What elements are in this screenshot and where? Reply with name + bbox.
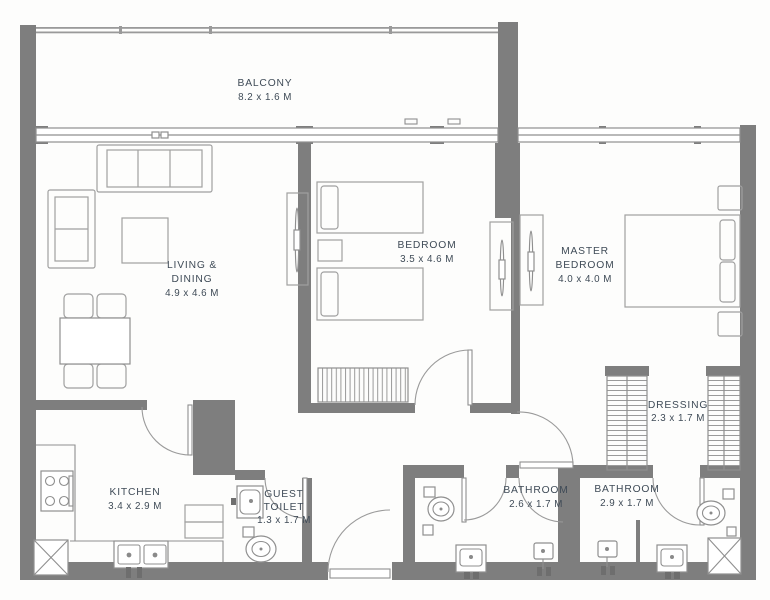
label-dims: 2.3 x 1.7 M [651,413,705,424]
fridge [185,505,223,538]
label-dims: 3.5 x 4.6 M [400,254,454,265]
toilet-guest [243,527,276,562]
label-line: KITCHEN [110,487,161,498]
service-shaft-kitchen [34,540,68,575]
toilet-bathroom-1 [423,487,454,535]
sofa-small [48,190,95,268]
label-dims: 8.2 x 1.6 M [238,92,292,103]
label-dims: 1.3 x 1.7 M [257,515,311,526]
bed-single-1 [317,182,423,233]
label-line: BEDROOM [398,240,457,251]
tv-unit-bedroom [490,222,513,310]
door-kitchen [142,405,192,455]
coffee-table [122,218,168,263]
label-dims: 3.4 x 2.9 M [108,501,162,512]
room-label-master-bedroom: MASTER BEDROOM 4.0 x 4.0 M [556,246,615,285]
label-line: DRESSING [648,400,708,411]
balcony-railing [36,26,498,34]
wardrobe-dressing-right [708,376,740,470]
dining-set [60,294,130,388]
nightstand-master-bottom [718,312,742,336]
room-label-living-dining: LIVING & DINING 4.9 x 4.6 M [165,260,219,299]
label-dims: 2.6 x 1.7 M [509,499,563,510]
door-bathroom-2 [653,478,704,525]
bed-master [625,215,740,307]
bed-single-2 [317,268,423,320]
room-label-bathroom-2: BATHROOM 2.9 x 1.7 M [594,484,659,509]
tv-unit-master [520,215,543,305]
service-shaft-bathroom-2 [708,538,741,574]
label-dims: 4.0 x 4.0 M [558,274,612,285]
label-line: MASTER [561,246,609,257]
label-dims: 4.9 x 4.6 M [165,288,219,299]
room-label-guest-toilet: GUEST TOILET 1.3 x 1.7 M [257,489,311,526]
label-line: BATHROOM [594,484,659,495]
stove [41,471,73,511]
label-line: BALCONY [238,78,293,89]
dining-chair [97,294,126,318]
label-line: LIVING & [167,260,217,271]
sofa-large [97,145,212,192]
label-line: BEDROOM [556,260,615,271]
wardrobe-dressing-left [607,376,647,470]
door-entry [328,510,390,578]
window-master [518,128,740,142]
room-label-balcony: BALCONY 8.2 x 1.6 M [238,78,293,103]
balcony-planters [405,119,460,124]
dining-chair [97,364,126,388]
room-label-bedroom: BEDROOM 3.5 x 4.6 M [398,240,457,265]
door-bathroom-1 [462,478,506,522]
window-living [36,128,498,142]
wardrobe-bedroom [318,368,408,402]
nightstand-bedroom [318,240,342,261]
dining-chair [64,364,93,388]
label-line: BATHROOM [503,485,568,496]
dining-table [60,318,130,364]
floor-plan-drawing: BALCONY 8.2 x 1.6 M LIVING & DINING 4.9 … [0,0,770,600]
label-line: TOILET [264,502,305,513]
door-master-corridor [517,412,573,468]
room-label-kitchen: KITCHEN 3.4 x 2.9 M [108,487,162,512]
dining-chair [64,294,93,318]
door-bedroom [415,350,472,405]
washbasin-guest-toilet [231,486,263,518]
label-dims: 2.9 x 1.7 M [600,498,654,509]
floor-plan: BALCONY 8.2 x 1.6 M LIVING & DINING 4.9 … [0,0,770,600]
nightstand-master-top [718,186,742,210]
label-line: GUEST [264,489,304,500]
label-line: DINING [172,274,213,285]
room-label-dressing: DRESSING 2.3 x 1.7 M [648,400,708,424]
